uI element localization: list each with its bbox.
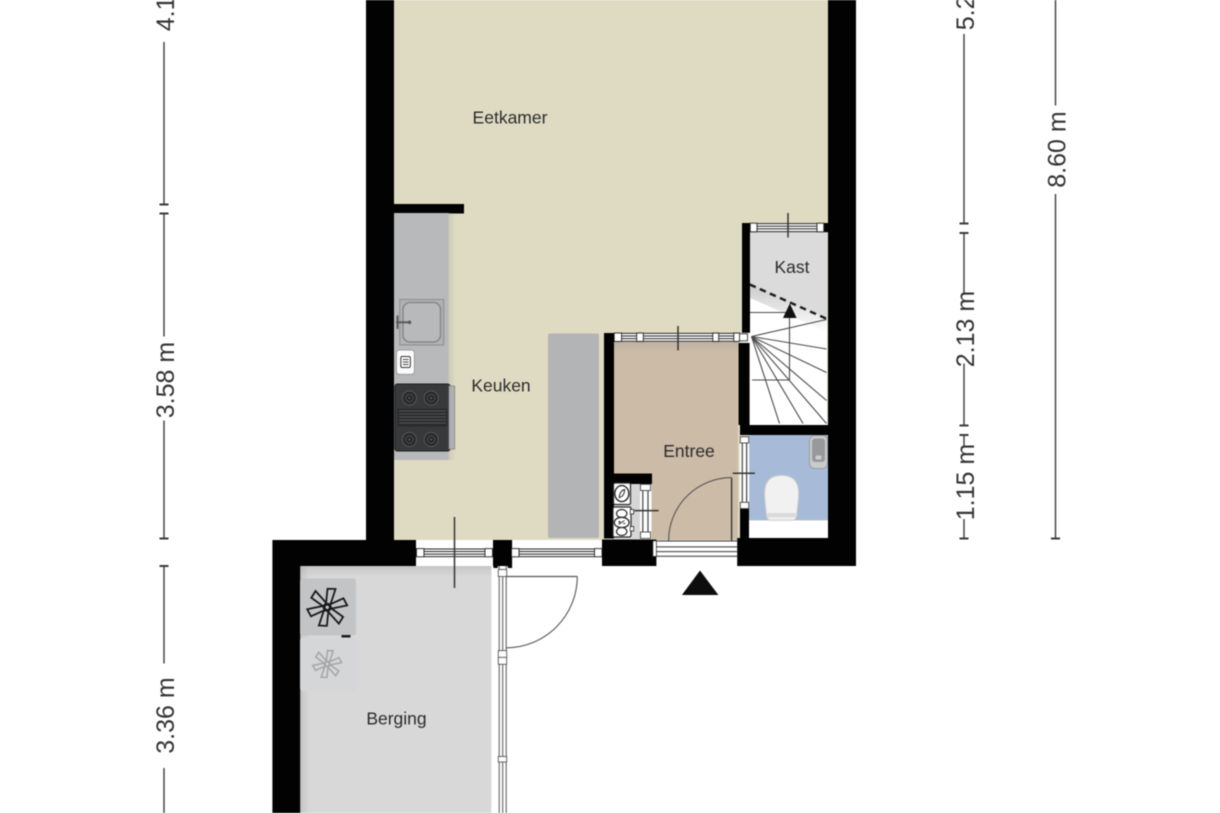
svg-text:3.58 m: 3.58 m: [152, 342, 180, 418]
svg-text:4.17 m: 4.17 m: [152, 0, 180, 31]
svg-text:8.60 m: 8.60 m: [1044, 111, 1072, 187]
svg-text:Entree: Entree: [663, 441, 715, 461]
svg-text:1.15 m: 1.15 m: [952, 444, 980, 520]
svg-text:3.36 m: 3.36 m: [152, 677, 180, 753]
svg-text:Berging: Berging: [366, 709, 426, 729]
svg-text:Eetkamer: Eetkamer: [473, 108, 548, 128]
svg-text:Keuken: Keuken: [471, 376, 530, 396]
svg-text:2.13 m: 2.13 m: [952, 291, 980, 367]
svg-text:5.20 m: 5.20 m: [952, 0, 980, 30]
svg-text:Kast: Kast: [774, 257, 809, 277]
